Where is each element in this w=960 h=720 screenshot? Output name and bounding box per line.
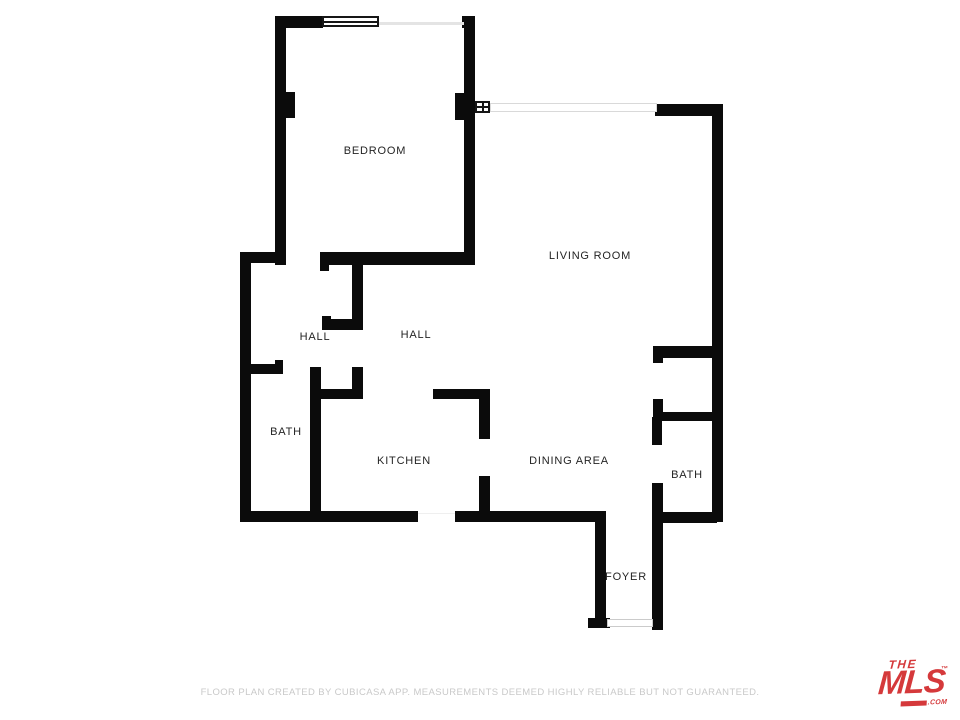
wall-segment — [652, 417, 662, 445]
wall-segment — [653, 346, 663, 363]
room-label-bath-right: BATH — [671, 469, 703, 481]
wall-segment — [322, 316, 331, 330]
small-window — [475, 101, 490, 113]
wall-segment — [240, 511, 418, 522]
logo-trademark: ™ — [941, 666, 948, 673]
wall-segment — [712, 104, 723, 522]
wall-segment — [320, 252, 329, 271]
room-label-living-room: LIVING ROOM — [549, 250, 631, 262]
bedroom-window — [322, 16, 379, 27]
wall-segment — [240, 252, 283, 263]
window-sill-line — [379, 22, 464, 25]
wall-segment — [479, 389, 490, 439]
floorplan-canvas: FLOOR PLAN CREATED BY CUBICASA APP. MEAS… — [0, 0, 960, 720]
wall-segment — [240, 252, 251, 522]
room-label-bedroom: BEDROOM — [344, 145, 406, 157]
room-label-hall-right: HALL — [401, 329, 432, 341]
themls-logo-inner: THE MLS ™ .COM — [872, 653, 954, 718]
wall-segment — [352, 367, 363, 399]
wall-segment — [280, 92, 295, 118]
wall-segment — [595, 511, 606, 628]
wall-segment — [455, 93, 475, 120]
footer-disclaimer: FLOOR PLAN CREATED BY CUBICASA APP. MEAS… — [0, 687, 960, 698]
logo-l-foot-shape — [901, 701, 927, 707]
wall-segment — [352, 255, 363, 327]
room-label-kitchen: KITCHEN — [377, 455, 431, 467]
window-band — [490, 103, 657, 112]
entry-door — [607, 619, 653, 627]
wall-segment — [652, 483, 663, 630]
wall-segment — [464, 16, 475, 265]
logo-com-text: .COM — [927, 699, 947, 707]
kitchen-opening — [418, 513, 455, 519]
room-label-hall-left: HALL — [300, 331, 331, 343]
wall-segment — [275, 360, 283, 374]
room-label-bath-left: BATH — [270, 426, 302, 438]
room-label-foyer: FOYER — [605, 571, 647, 583]
wall-segment — [275, 16, 286, 265]
logo-mls-text: MLS — [877, 662, 946, 702]
wall-segment — [455, 511, 605, 522]
themls-logo: THE MLS ™ .COM — [874, 654, 952, 716]
wall-segment — [656, 412, 713, 421]
wall-segment — [320, 252, 475, 265]
room-label-dining-area: DINING AREA — [529, 455, 609, 467]
wall-segment — [660, 512, 717, 523]
